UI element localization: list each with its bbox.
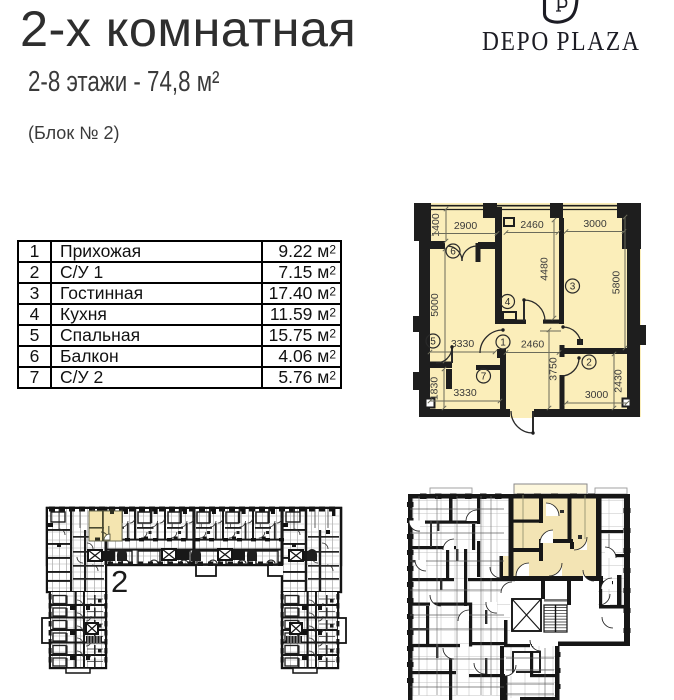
svg-text:3330: 3330 bbox=[451, 338, 475, 350]
svg-text:3000: 3000 bbox=[583, 218, 607, 230]
svg-text:2460: 2460 bbox=[521, 339, 545, 351]
svg-text:2460: 2460 bbox=[520, 219, 544, 231]
svg-text:5000: 5000 bbox=[429, 293, 441, 317]
svg-text:2900: 2900 bbox=[454, 220, 478, 232]
svg-text:5800: 5800 bbox=[611, 271, 623, 295]
svg-text:2: 2 bbox=[111, 564, 128, 599]
svg-text:1: 1 bbox=[500, 337, 506, 348]
svg-text:5: 5 bbox=[430, 336, 436, 347]
svg-text:3330: 3330 bbox=[453, 387, 477, 399]
svg-text:2430: 2430 bbox=[613, 369, 625, 393]
svg-text:2: 2 bbox=[586, 357, 592, 368]
svg-text:3: 3 bbox=[570, 281, 576, 292]
svg-text:6: 6 bbox=[450, 246, 456, 257]
svg-text:4480: 4480 bbox=[539, 257, 551, 281]
svg-text:3000: 3000 bbox=[585, 389, 609, 401]
svg-text:3750: 3750 bbox=[548, 357, 560, 381]
svg-text:4: 4 bbox=[505, 297, 511, 308]
svg-text:1830: 1830 bbox=[429, 377, 441, 401]
svg-text:7: 7 bbox=[481, 371, 487, 382]
